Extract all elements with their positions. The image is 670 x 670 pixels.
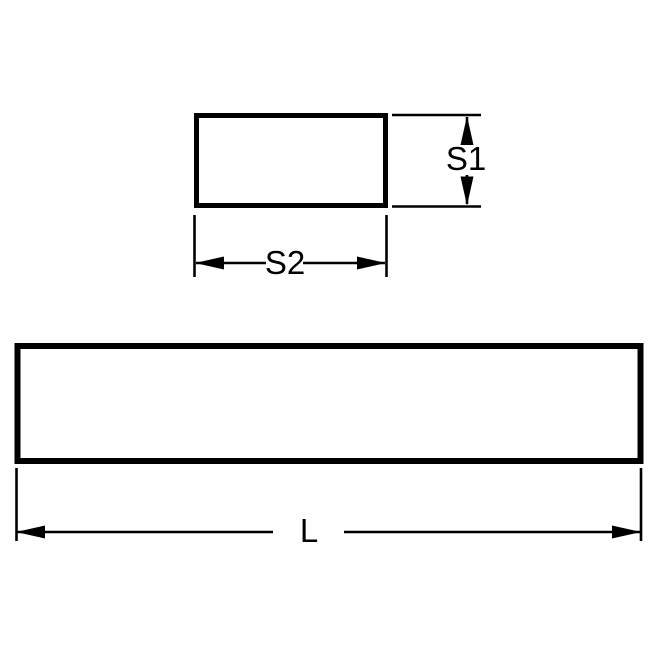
cross-section-rectangle [197, 116, 386, 206]
cross-section-view: S1 S2 [195, 115, 487, 281]
s2-arrowhead-left-icon [195, 257, 224, 270]
l-arrowhead-right-icon [612, 526, 641, 539]
s2-dimension: S2 [195, 215, 387, 281]
l-arrowhead-left-icon [16, 526, 45, 539]
s1-arrowhead-down-icon [461, 177, 474, 206]
s2-label: S2 [265, 244, 305, 281]
l-dimension: L [16, 468, 641, 549]
s1-label: S1 [446, 140, 486, 177]
side-view: L [16, 346, 641, 549]
s1-dimension: S1 [392, 115, 486, 207]
drawing-svg: S1 S2 L [0, 0, 670, 670]
l-label: L [300, 512, 318, 549]
side-view-rectangle [18, 346, 641, 461]
s2-arrowhead-right-icon [357, 257, 386, 270]
keystock-dimension-drawing: S1 S2 L [0, 0, 670, 670]
